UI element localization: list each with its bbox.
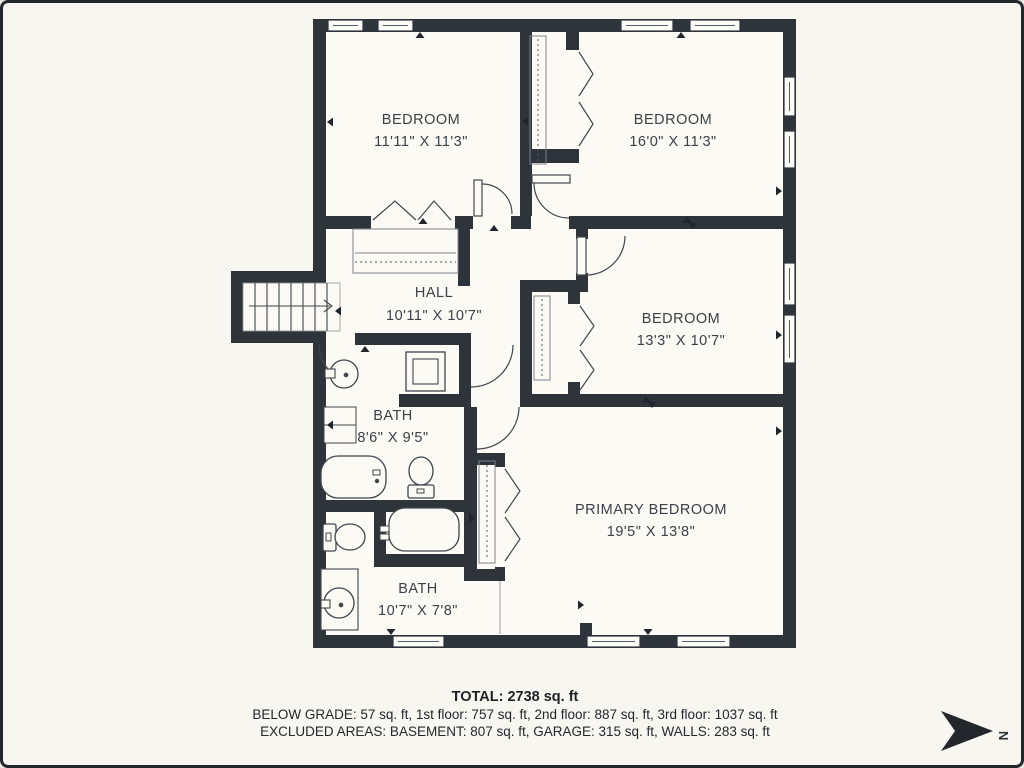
room-label-hall: HALL [415, 285, 453, 301]
room-dims-bedroom-3: 13'3" X 10'7" [637, 333, 725, 349]
room-label-bedroom-2: BEDROOM [634, 112, 712, 128]
bathtub [389, 508, 459, 551]
room-label-primary-bedroom: PRIMARY BEDROOM [575, 502, 727, 518]
floor-plan-page: BEDROOM 11'11" X 11'3" BEDROOM 16'0" X 1… [0, 0, 1024, 768]
room-label-bedroom-3: BEDROOM [642, 311, 720, 327]
compass: N [941, 711, 1011, 751]
room-dims-bedroom-1: 11'11" X 11'3" [374, 134, 468, 150]
room-dims-primary-bedroom: 19'5" X 13'8" [607, 524, 695, 540]
cabinet [324, 407, 356, 425]
floor-plan-drawing: BEDROOM 11'11" X 11'3" BEDROOM 16'0" X 1… [3, 3, 1024, 768]
floor-areas-text: BELOW GRADE: 57 sq. ft, 1st floor: 757 s… [252, 707, 778, 722]
area-summary: TOTAL: 2738 sq. ft BELOW GRADE: 57 sq. f… [252, 689, 778, 739]
room-label-bedroom-1: BEDROOM [382, 112, 460, 128]
excluded-areas-text: EXCLUDED AREAS: BASEMENT: 807 sq. ft, GA… [260, 724, 770, 739]
compass-north-label: N [996, 731, 1011, 740]
compass-north-arrow [941, 711, 993, 751]
room-label-bath-2: BATH [398, 581, 438, 597]
room-label-bath-1: BATH [373, 408, 413, 424]
room-dims-bath-1: 8'6" X 9'5" [357, 430, 428, 446]
toilet [409, 457, 433, 485]
room-dims-bedroom-2: 16'0" X 11'3" [629, 134, 716, 150]
total-area-text: TOTAL: 2738 sq. ft [452, 689, 579, 705]
room-dims-bath-2: 10'7" X 7'8" [378, 603, 458, 619]
bathtub [321, 456, 386, 498]
room-dims-hall: 10'11" X 10'7" [386, 308, 482, 324]
